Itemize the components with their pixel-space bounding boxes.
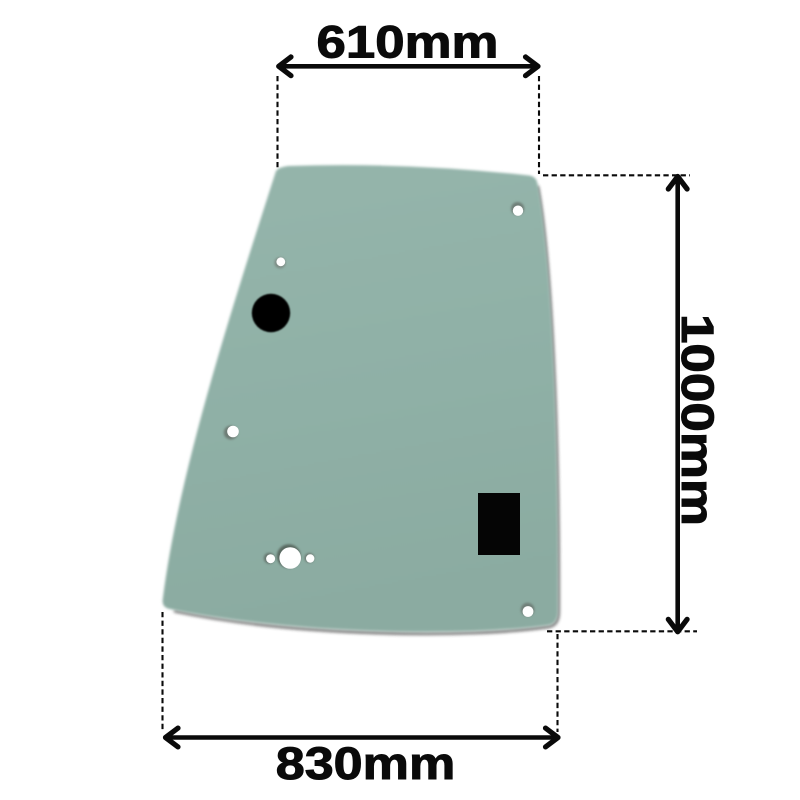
svg-text:1000mm: 1000mm <box>672 314 723 526</box>
svg-text:830mm: 830mm <box>276 739 456 789</box>
svg-text:610mm: 610mm <box>316 17 498 68</box>
